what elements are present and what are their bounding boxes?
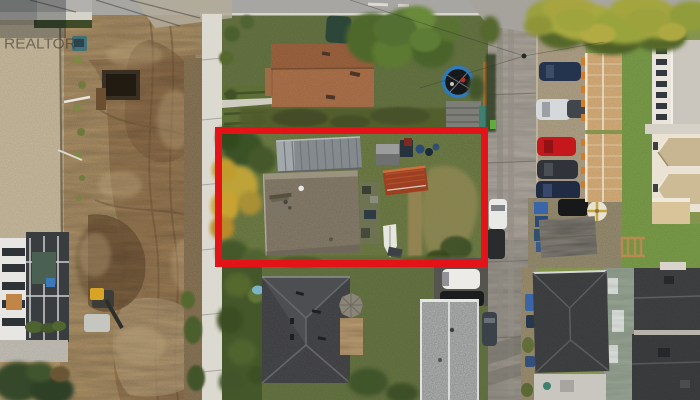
svg-text:REALTOR®: REALTOR® [4, 37, 82, 53]
